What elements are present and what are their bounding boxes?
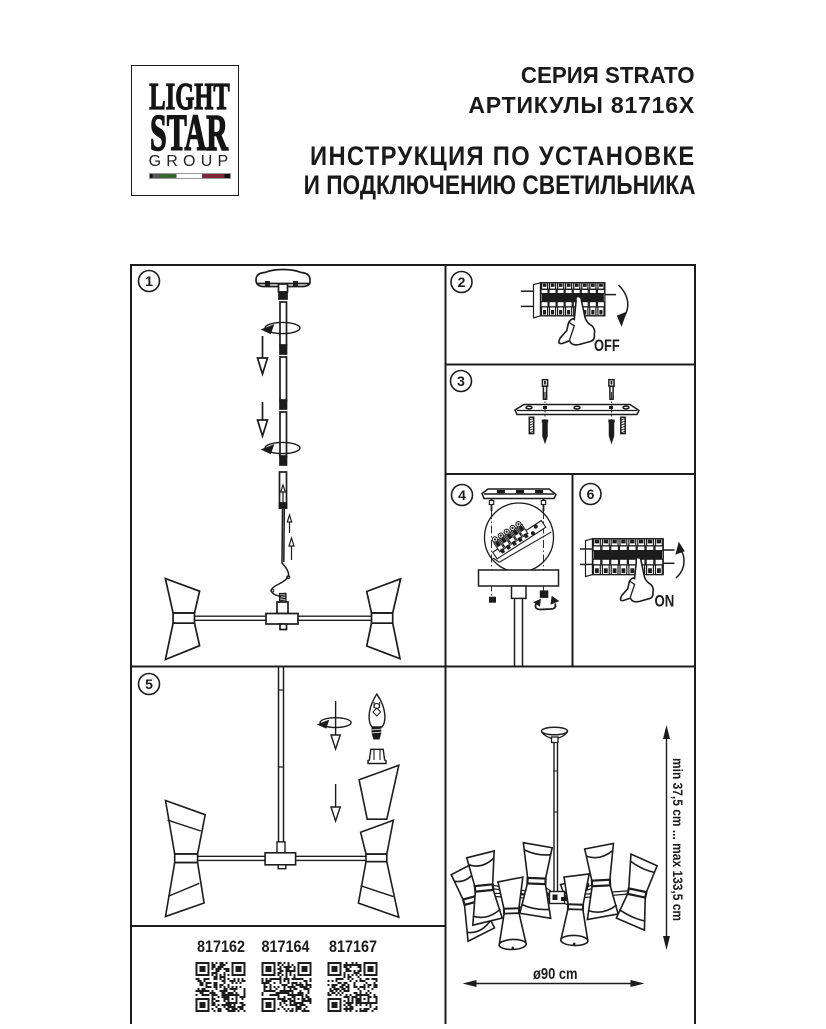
svg-text:817162: 817162 bbox=[197, 937, 245, 956]
svg-text:817167: 817167 bbox=[329, 937, 377, 956]
svg-text:5: 5 bbox=[145, 676, 153, 692]
svg-text:OFF: OFF bbox=[594, 338, 620, 356]
svg-text:6: 6 bbox=[587, 486, 595, 502]
svg-text:4: 4 bbox=[458, 487, 466, 503]
svg-text:ON: ON bbox=[655, 592, 675, 611]
svg-text:min 37,5 cm ... max 133,5 cm: min 37,5 cm ... max 133,5 cm bbox=[670, 758, 686, 921]
svg-text:817164: 817164 bbox=[262, 937, 310, 956]
svg-text:1: 1 bbox=[145, 273, 153, 289]
svg-text:2: 2 bbox=[458, 274, 466, 290]
svg-text:3: 3 bbox=[457, 373, 465, 389]
svg-text:ø90 cm: ø90 cm bbox=[533, 966, 578, 983]
